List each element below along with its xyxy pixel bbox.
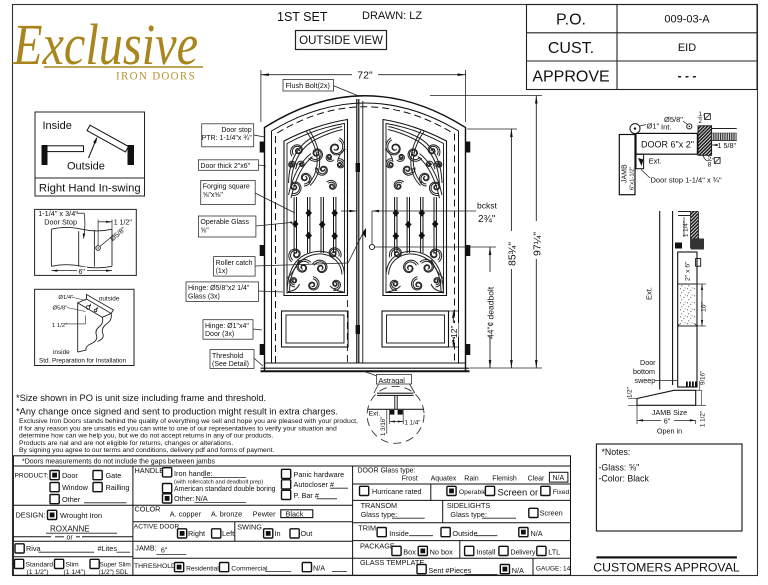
svg-text:Outside: Outside — [452, 529, 477, 538]
svg-text:(1 1/4"): (1 1/4") — [64, 569, 86, 576]
svg-text:(1/2") SDL: (1/2") SDL — [99, 569, 129, 576]
svg-text:Outside: Outside — [67, 161, 105, 173]
svg-text:bottom: bottom — [633, 367, 655, 376]
svg-text:DOOR Glass type:: DOOR Glass type: — [358, 467, 416, 474]
svg-text:6": 6" — [79, 269, 86, 276]
svg-text:Door Stop: Door Stop — [44, 218, 77, 227]
svg-text:1 1/2": 1 1/2" — [700, 411, 707, 427]
svg-text:PACKAGE: PACKAGE — [360, 542, 395, 551]
svg-text:P. Bar #: P. Bar # — [294, 491, 320, 500]
svg-text:THRESHOLD: THRESHOLD — [134, 563, 176, 570]
svg-text:N/A: N/A — [553, 475, 565, 482]
svg-text:Rain: Rain — [464, 475, 479, 482]
svg-text:Gate: Gate — [106, 471, 122, 480]
svg-text:72": 72" — [357, 70, 373, 82]
svg-text:JAMB: JAMB — [622, 164, 629, 183]
svg-text:GLASS TEMPLATE: GLASS TEMPLATE — [360, 558, 424, 567]
svg-text:DOOR 6"x 2": DOOR 6"x 2" — [641, 140, 694, 150]
svg-text:COLOR: COLOR — [135, 505, 161, 514]
svg-text:A. bronze: A. bronze — [211, 510, 242, 519]
svg-text:Standard: Standard — [26, 561, 54, 568]
svg-text:Ø1": Ø1" — [647, 122, 660, 131]
svg-text:9/16": 9/16" — [700, 371, 707, 385]
svg-text:Residential: Residential — [186, 565, 219, 572]
svg-text:Left: Left — [222, 529, 234, 538]
svg-text:Glass type:: Glass type: — [361, 510, 398, 519]
svg-text:Super Slim: Super Slim — [100, 561, 131, 568]
svg-text:10": 10" — [701, 301, 708, 312]
svg-text:Iron handle:: Iron handle: — [174, 469, 213, 478]
svg-text:Ø5/8": Ø5/8" — [664, 115, 683, 124]
svg-text:By signing you agree to our te: By signing you agree to our terms and co… — [19, 447, 275, 454]
svg-text:Door: Door — [640, 358, 656, 367]
svg-text:or: or — [67, 534, 74, 541]
svg-text:Sent #Pieces: Sent #Pieces — [428, 566, 471, 575]
svg-text:Clear: Clear — [528, 475, 545, 482]
svg-text:EID: EID — [678, 42, 696, 54]
svg-text:Window: Window — [62, 483, 89, 492]
svg-text:Fixed: Fixed — [553, 489, 570, 496]
svg-text:1 3/16": 1 3/16" — [380, 417, 387, 436]
svg-text:OUTSIDE VIEW: OUTSIDE VIEW — [299, 35, 383, 47]
svg-text:6": 6" — [161, 547, 168, 554]
svg-text:IRON DOORS: IRON DOORS — [116, 71, 196, 83]
svg-text:P.O.: P.O. — [556, 12, 586, 29]
svg-text:*Notes:: *Notes: — [602, 447, 631, 457]
svg-text:Door (3x): Door (3x) — [205, 331, 234, 338]
svg-text:Door: Door — [62, 471, 78, 480]
svg-text:Box: Box — [403, 548, 416, 557]
svg-text:Frost: Frost — [402, 475, 418, 482]
svg-text:Ext.: Ext. — [649, 157, 662, 166]
svg-text:Pewter: Pewter — [253, 510, 276, 519]
svg-text:Slim: Slim — [66, 561, 80, 568]
svg-text:Wrought Iron: Wrought Iron — [60, 511, 102, 520]
svg-text:APPROVE: APPROVE — [532, 69, 609, 86]
svg-text:inside: inside — [53, 349, 70, 356]
svg-text:Threshold: Threshold — [212, 353, 243, 360]
svg-text:American standard double borin: American standard double boring — [174, 486, 276, 493]
svg-text:Install: Install — [476, 548, 495, 557]
svg-text:(1x): (1x) — [216, 268, 228, 275]
svg-text:Out: Out — [301, 529, 313, 538]
svg-text:Screen or: Screen or — [498, 486, 539, 497]
svg-text:Flemish: Flemish — [492, 475, 517, 482]
svg-text:Astragal: Astragal — [379, 376, 406, 385]
svg-text:1 5/8": 1 5/8" — [718, 141, 737, 150]
svg-text:Delivery: Delivery — [511, 550, 536, 557]
svg-text:Railling: Railling — [106, 483, 130, 492]
svg-text:sweep: sweep — [635, 376, 656, 385]
svg-text:GAUGE: 14: GAUGE: 14 — [536, 566, 571, 573]
svg-text:N/A: N/A — [531, 529, 543, 538]
svg-text:Right Hand In-swing: Right Hand In-swing — [39, 183, 141, 195]
svg-text:1 1/4": 1 1/4" — [683, 221, 690, 237]
svg-text:No box: No box — [430, 548, 453, 557]
svg-text:44"¢ deadbolt: 44"¢ deadbolt — [486, 286, 496, 339]
svg-text:Aquatex: Aquatex — [431, 475, 457, 482]
svg-text:JAMB:: JAMB: — [135, 543, 157, 552]
svg-text:Panic hardware: Panic hardware — [294, 470, 345, 479]
svg-text:N/A: N/A — [512, 566, 524, 575]
svg-text:A. copper: A. copper — [170, 510, 202, 519]
svg-text:Ext.: Ext. — [645, 287, 654, 300]
svg-text:Ext.: Ext. — [369, 411, 381, 418]
svg-text:Commercial: Commercial — [231, 565, 268, 572]
svg-text:In: In — [275, 529, 281, 538]
svg-text:Operable Glass: Operable Glass — [200, 219, 249, 226]
svg-text:if for any reason you are unsa: if for any reason you are unsatis ed you… — [19, 425, 337, 432]
svg-text:Ø5/8": Ø5/8" — [53, 306, 68, 312]
svg-text:ROXANNE: ROXANNE — [50, 524, 90, 533]
svg-text:Right: Right — [188, 529, 205, 538]
svg-text:6"x1-1/2": 6"x1-1/2" — [630, 167, 636, 190]
svg-text:Hinge: Ø5/8"x2 1/4": Hinge: Ø5/8"x2 1/4" — [188, 285, 250, 292]
svg-text:N/A: N/A — [313, 563, 325, 572]
svg-text:Black: Black — [286, 509, 304, 518]
svg-text:Ø1/4": Ø1/4" — [58, 295, 73, 301]
svg-text:DESIGN:: DESIGN: — [16, 511, 46, 520]
svg-text:Other:: Other: — [174, 494, 194, 503]
svg-text:*Doors measurements do not inc: *Doors measurements do not include the g… — [22, 458, 215, 465]
svg-text:Autocloser #: Autocloser # — [294, 480, 336, 489]
svg-text:Forging square: Forging square — [203, 184, 250, 191]
svg-text:Products are nal and are no: Products are nal and are not eligible fo… — [19, 440, 233, 447]
svg-text:outside: outside — [99, 296, 120, 303]
svg-text:PRODUCT:: PRODUCT: — [15, 473, 49, 480]
svg-text:Door stop 1-1/4" x ¾": Door stop 1-1/4" x ¾" — [651, 176, 723, 185]
svg-text:TRIM: TRIM — [358, 523, 376, 532]
svg-text:Inside: Inside — [389, 529, 408, 538]
svg-text:N/A: N/A — [196, 494, 208, 503]
svg-text:1ST SET: 1ST SET — [277, 10, 328, 24]
svg-text:Flush Bolt(2x): Flush Bolt(2x) — [286, 81, 330, 90]
svg-text:Exclusive Iron Doors stands be: Exclusive Iron Doors stands behind the q… — [19, 418, 358, 425]
svg-text:Screen: Screen — [540, 509, 563, 518]
svg-text:1 1/4": 1 1/4" — [405, 420, 421, 427]
svg-text:⅝"x⅝": ⅝"x⅝" — [203, 192, 224, 199]
svg-text:-Glass: ⅝": -Glass: ⅝" — [599, 463, 640, 473]
svg-text:#Lites: #Lites — [98, 544, 118, 553]
svg-text:Hinge: Ø1"x4": Hinge: Ø1"x4" — [205, 323, 249, 330]
svg-text:*Any change once signed and se: *Any change once signed and sent to prod… — [16, 407, 338, 417]
svg-text:(See Detail): (See Detail) — [212, 361, 249, 368]
svg-text:ACTIVE DOOR: ACTIVE DOOR — [134, 523, 180, 530]
svg-text:Door stop: Door stop — [221, 127, 251, 134]
svg-text:97¼": 97¼" — [532, 232, 544, 256]
svg-text:": " — [712, 158, 714, 165]
svg-text:DRAWN: LZ: DRAWN: LZ — [362, 10, 422, 22]
svg-text:85¾": 85¾" — [507, 242, 519, 266]
svg-text:CUST.: CUST. — [548, 40, 594, 57]
svg-text:Glass (3x): Glass (3x) — [188, 293, 220, 300]
svg-text:Glass type:: Glass type: — [450, 510, 487, 519]
svg-text:2" x 6": 2" x 6" — [685, 261, 692, 281]
svg-text:009-03-A: 009-03-A — [664, 14, 710, 26]
svg-text:Open in: Open in — [657, 427, 682, 436]
svg-text:HANDLE: HANDLE — [135, 466, 165, 475]
svg-text:1/2": 1/2" — [627, 387, 634, 398]
svg-text:determine how can we help you,: determine how can we help you, but we do… — [19, 433, 273, 440]
svg-text:bckst: bckst — [477, 201, 497, 211]
svg-text:-Color: Black: -Color: Black — [599, 474, 650, 484]
svg-text:- - -: - - - — [678, 69, 697, 83]
svg-text:2¾": 2¾" — [478, 214, 496, 225]
svg-text:SIDELIGHTS: SIDELIGHTS — [447, 501, 491, 510]
svg-text:LTL: LTL — [548, 548, 560, 557]
svg-text:⅝": ⅝" — [200, 227, 209, 234]
svg-text:12": 12" — [449, 326, 459, 338]
svg-text:*Size shown in PO is unit size: *Size shown in PO is unit size including… — [16, 393, 266, 403]
svg-text:Operable: Operable — [459, 489, 487, 496]
svg-text:Roller catch: Roller catch — [216, 260, 253, 267]
svg-text:TRANSOM: TRANSOM — [361, 501, 398, 510]
svg-text:6": 6" — [664, 417, 671, 426]
svg-text:(1 1/2"): (1 1/2") — [27, 569, 49, 576]
svg-text:Door thick 2"x6": Door thick 2"x6" — [200, 163, 250, 170]
svg-text:Other: Other — [62, 495, 81, 504]
svg-text:SWING: SWING — [237, 522, 262, 531]
svg-text:1 1/2": 1 1/2" — [114, 220, 133, 227]
svg-text:Hurricane rated: Hurricane rated — [372, 487, 422, 496]
svg-text:1 1/2": 1 1/2" — [52, 323, 67, 329]
svg-text:(with rollercatch and deadbolt: (with rollercatch and deadbolt prep) — [174, 479, 263, 485]
svg-text:Inside: Inside — [43, 120, 72, 132]
svg-text:CUSTOMERS APPROVAL: CUSTOMERS APPROVAL — [593, 561, 740, 575]
svg-text:PTR: 1-1/4"x ¾": PTR: 1-1/4"x ¾" — [202, 135, 253, 142]
svg-text:Std. Preparation for Installat: Std. Preparation for Installation — [39, 358, 127, 365]
